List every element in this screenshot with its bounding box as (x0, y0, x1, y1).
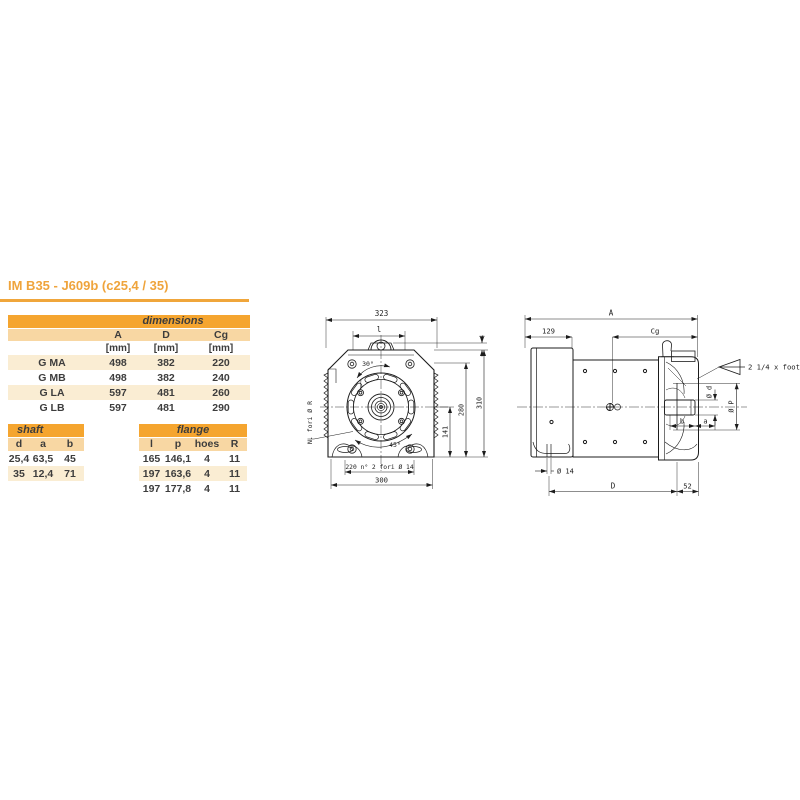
cell: 382 (140, 370, 192, 385)
side-view-drawing: A 129 Cg 2 1/4 x foot Ø d Ø P b a Ø 14 D… (505, 290, 800, 515)
stator-frame (573, 360, 659, 457)
col-header-shaft-b: b (56, 437, 84, 451)
dims-subheader-spacer (8, 328, 96, 341)
side-dimension-labels: A 129 Cg 2 1/4 x foot Ø d Ø P b a Ø 14 D… (542, 309, 800, 491)
cell: 165 (139, 451, 164, 466)
dim-label-300: 300 (375, 476, 388, 485)
col-header-flange-hoes: hoes (192, 437, 222, 451)
cell: 11 (222, 451, 247, 466)
dim-label-l: l (377, 325, 382, 334)
foot-note-label: 2 1/4 x foot (748, 363, 800, 372)
engine-adapter (531, 348, 573, 457)
datasheet-page: IM B35 - J609b (c25,4 / 35) dimensions A… (0, 0, 800, 800)
front-foot (533, 442, 570, 454)
cell: 481 (140, 400, 192, 415)
dim-label-280: 280 (458, 404, 466, 416)
cell: 260 (192, 385, 250, 400)
alternator-end (659, 341, 699, 460)
cell: 35 (8, 466, 30, 481)
dims-header: dimensions (96, 315, 250, 328)
cell: 12,4 (30, 466, 56, 481)
table-row: 165 146,1 4 11 (139, 451, 247, 466)
cell: 11 (222, 481, 247, 496)
table-row: G MB 498 382 240 (8, 370, 250, 385)
table-row: 197 177,8 4 11 (139, 481, 247, 496)
dim-label-4: 4 (479, 335, 487, 339)
cell: 4 (192, 451, 222, 466)
col-header-d: D (140, 328, 192, 341)
col-header-a: A (96, 328, 140, 341)
front-view-drawing: 323 l 4 30° 45° N. fori Ø R 141 280 310 … (298, 293, 500, 505)
lifting-handle (663, 341, 672, 357)
frame-bolts (583, 369, 646, 443)
table-row: G LA 597 481 260 (8, 385, 250, 400)
cell: 597 (96, 400, 140, 415)
cell: 197 (139, 466, 164, 481)
dim-label-a: a (703, 418, 707, 426)
col-header-cg: Cg (192, 328, 250, 341)
table-row: 25,4 63,5 45 (8, 451, 84, 466)
dim-label-141: 141 (442, 426, 450, 438)
cell: 4 (192, 481, 222, 496)
unit-d: [mm] (140, 341, 192, 355)
cell: 11 (222, 466, 247, 481)
title-underline (0, 299, 249, 302)
table-row: G MA 498 382 220 (8, 355, 250, 370)
page-title: IM B35 - J609b (c25,4 / 35) (8, 278, 168, 293)
centerlines (320, 335, 448, 471)
dim-label-D: D (611, 482, 616, 491)
row-label: G LB (8, 400, 96, 415)
table-row: 35 12,4 71 (8, 466, 84, 481)
cell: 597 (96, 385, 140, 400)
dim-label-A: A (609, 309, 614, 318)
col-header-shaft-d: d (8, 437, 30, 451)
col-header-flange-r: R (222, 437, 247, 451)
dim-label-323: 323 (375, 309, 389, 318)
front-dimension-labels: 323 l 4 30° 45° N. fori Ø R 141 280 310 … (306, 309, 487, 485)
cell: 163,6 (164, 466, 192, 481)
cell: 498 (96, 355, 140, 370)
dim-label-b: b (680, 418, 684, 426)
dim-label-pilot-P: Ø P (728, 400, 736, 412)
cooling-fins-left (324, 373, 328, 438)
dim-label-foot-hole: Ø 14 (557, 468, 574, 476)
flange-header: flange (139, 424, 247, 437)
cell: 45 (56, 451, 84, 466)
row-label: G MA (8, 355, 96, 370)
cell: 4 (192, 466, 222, 481)
dim-label-Cg: Cg (651, 327, 660, 336)
cell: 177,8 (164, 481, 192, 496)
table-row: 197 163,6 4 11 (139, 466, 247, 481)
cell: 25,4 (8, 451, 30, 466)
row-label: G LA (8, 385, 96, 400)
cell: 146,1 (164, 451, 192, 466)
cell: 481 (140, 385, 192, 400)
dim-label-52: 52 (683, 483, 691, 491)
cell: 71 (56, 466, 84, 481)
feet-holes-label: 220 n° 2 fori Ø 14 (345, 463, 413, 471)
col-header-flange-l: l (139, 437, 164, 451)
cell: 197 (139, 481, 164, 496)
dimensions-table: dimensions A D Cg [mm] [mm] [mm] G MA 49… (8, 315, 250, 415)
cell: 382 (140, 355, 192, 370)
units-spacer (8, 341, 96, 355)
shaft-header: shaft (8, 424, 84, 437)
flange-table: flange l p hoes R 165 146,1 4 11 197 163… (139, 424, 247, 496)
cell: 290 (192, 400, 250, 415)
shaft-stub (665, 400, 696, 415)
cell: 240 (192, 370, 250, 385)
cell: 498 (96, 370, 140, 385)
dim-label-shaft-d: Ø d (706, 386, 714, 398)
angle-label-45: 45° (389, 441, 401, 449)
unit-a: [mm] (96, 341, 140, 355)
cell: 63,5 (30, 451, 56, 466)
shaft-table: shaft d a b 25,4 63,5 45 35 12,4 71 (8, 424, 84, 481)
col-header-shaft-a: a (30, 437, 56, 451)
cell: 220 (192, 355, 250, 370)
unit-cg: [mm] (192, 341, 250, 355)
holes-note-label: N. fori Ø R (306, 401, 314, 444)
motor-side-body (531, 341, 699, 460)
dim-label-129: 129 (542, 327, 555, 336)
row-label: G MB (8, 370, 96, 385)
dims-header-spacer (8, 315, 96, 328)
col-header-flange-p: p (164, 437, 192, 451)
dim-label-310: 310 (476, 397, 484, 409)
table-row: G LB 597 481 290 (8, 400, 250, 415)
angle-label-30: 30° (362, 360, 374, 368)
cooling-fins-right (434, 373, 438, 438)
